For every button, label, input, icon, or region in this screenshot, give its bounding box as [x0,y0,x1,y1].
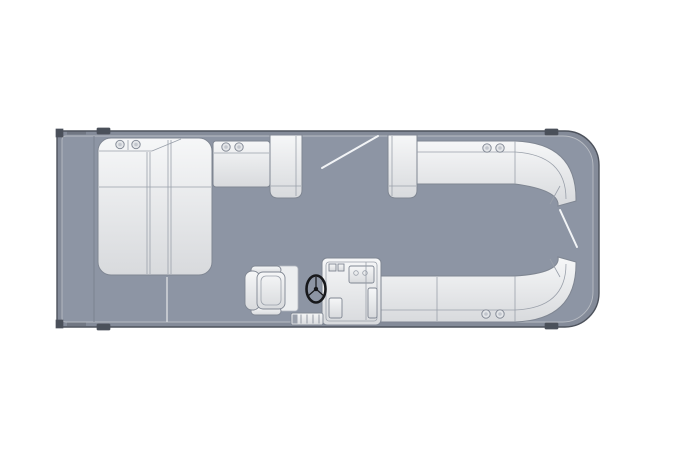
ladder-end-cap [293,315,298,324]
stern-lounge-base [98,138,212,275]
wheel-hub [314,287,318,291]
captains-chair [245,266,298,315]
walkthrough-seat-left [270,135,302,198]
floorplan-canvas [0,0,690,461]
aft-bench [213,141,270,187]
label-smudge-bottom [67,323,86,327]
cleat-icon [545,323,558,329]
stern-lounge-chaise [98,138,212,275]
pontoon-floorplan-diagram [0,0,690,461]
cleat-icon [545,129,558,135]
stern-corner-block-bottom [56,320,63,328]
boarding-ladder [291,313,323,325]
console-side-panel [368,288,377,318]
label-smudge-top [67,131,86,135]
console-dash-panel [349,266,374,283]
console-switch-2 [338,264,344,271]
console-lower-panel [329,298,342,318]
console-switch-1 [329,264,336,271]
cleat-icon [97,324,110,330]
walkthrough-seat-right [388,135,417,198]
cleat-icon [97,128,110,134]
stern-corner-block-top [56,129,63,137]
